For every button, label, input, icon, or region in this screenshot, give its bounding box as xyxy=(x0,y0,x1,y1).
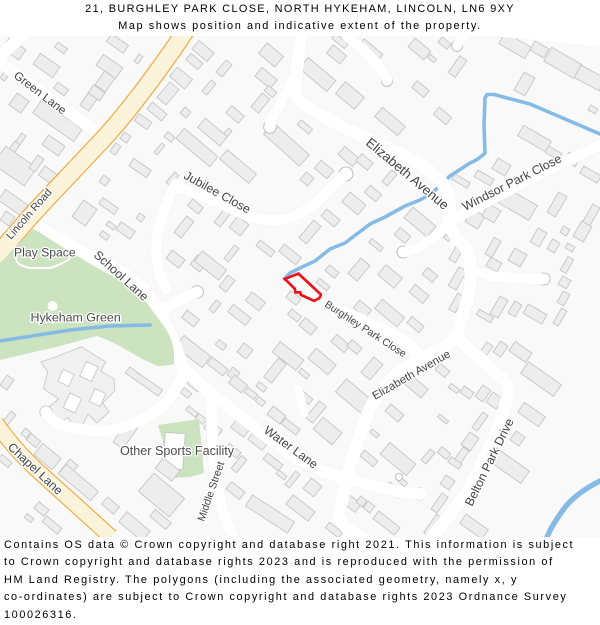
svg-text:Other Sports Facility: Other Sports Facility xyxy=(120,444,235,458)
svg-text:Play Space: Play Space xyxy=(14,246,76,260)
svg-text:Hykeham Green: Hykeham Green xyxy=(31,311,121,325)
